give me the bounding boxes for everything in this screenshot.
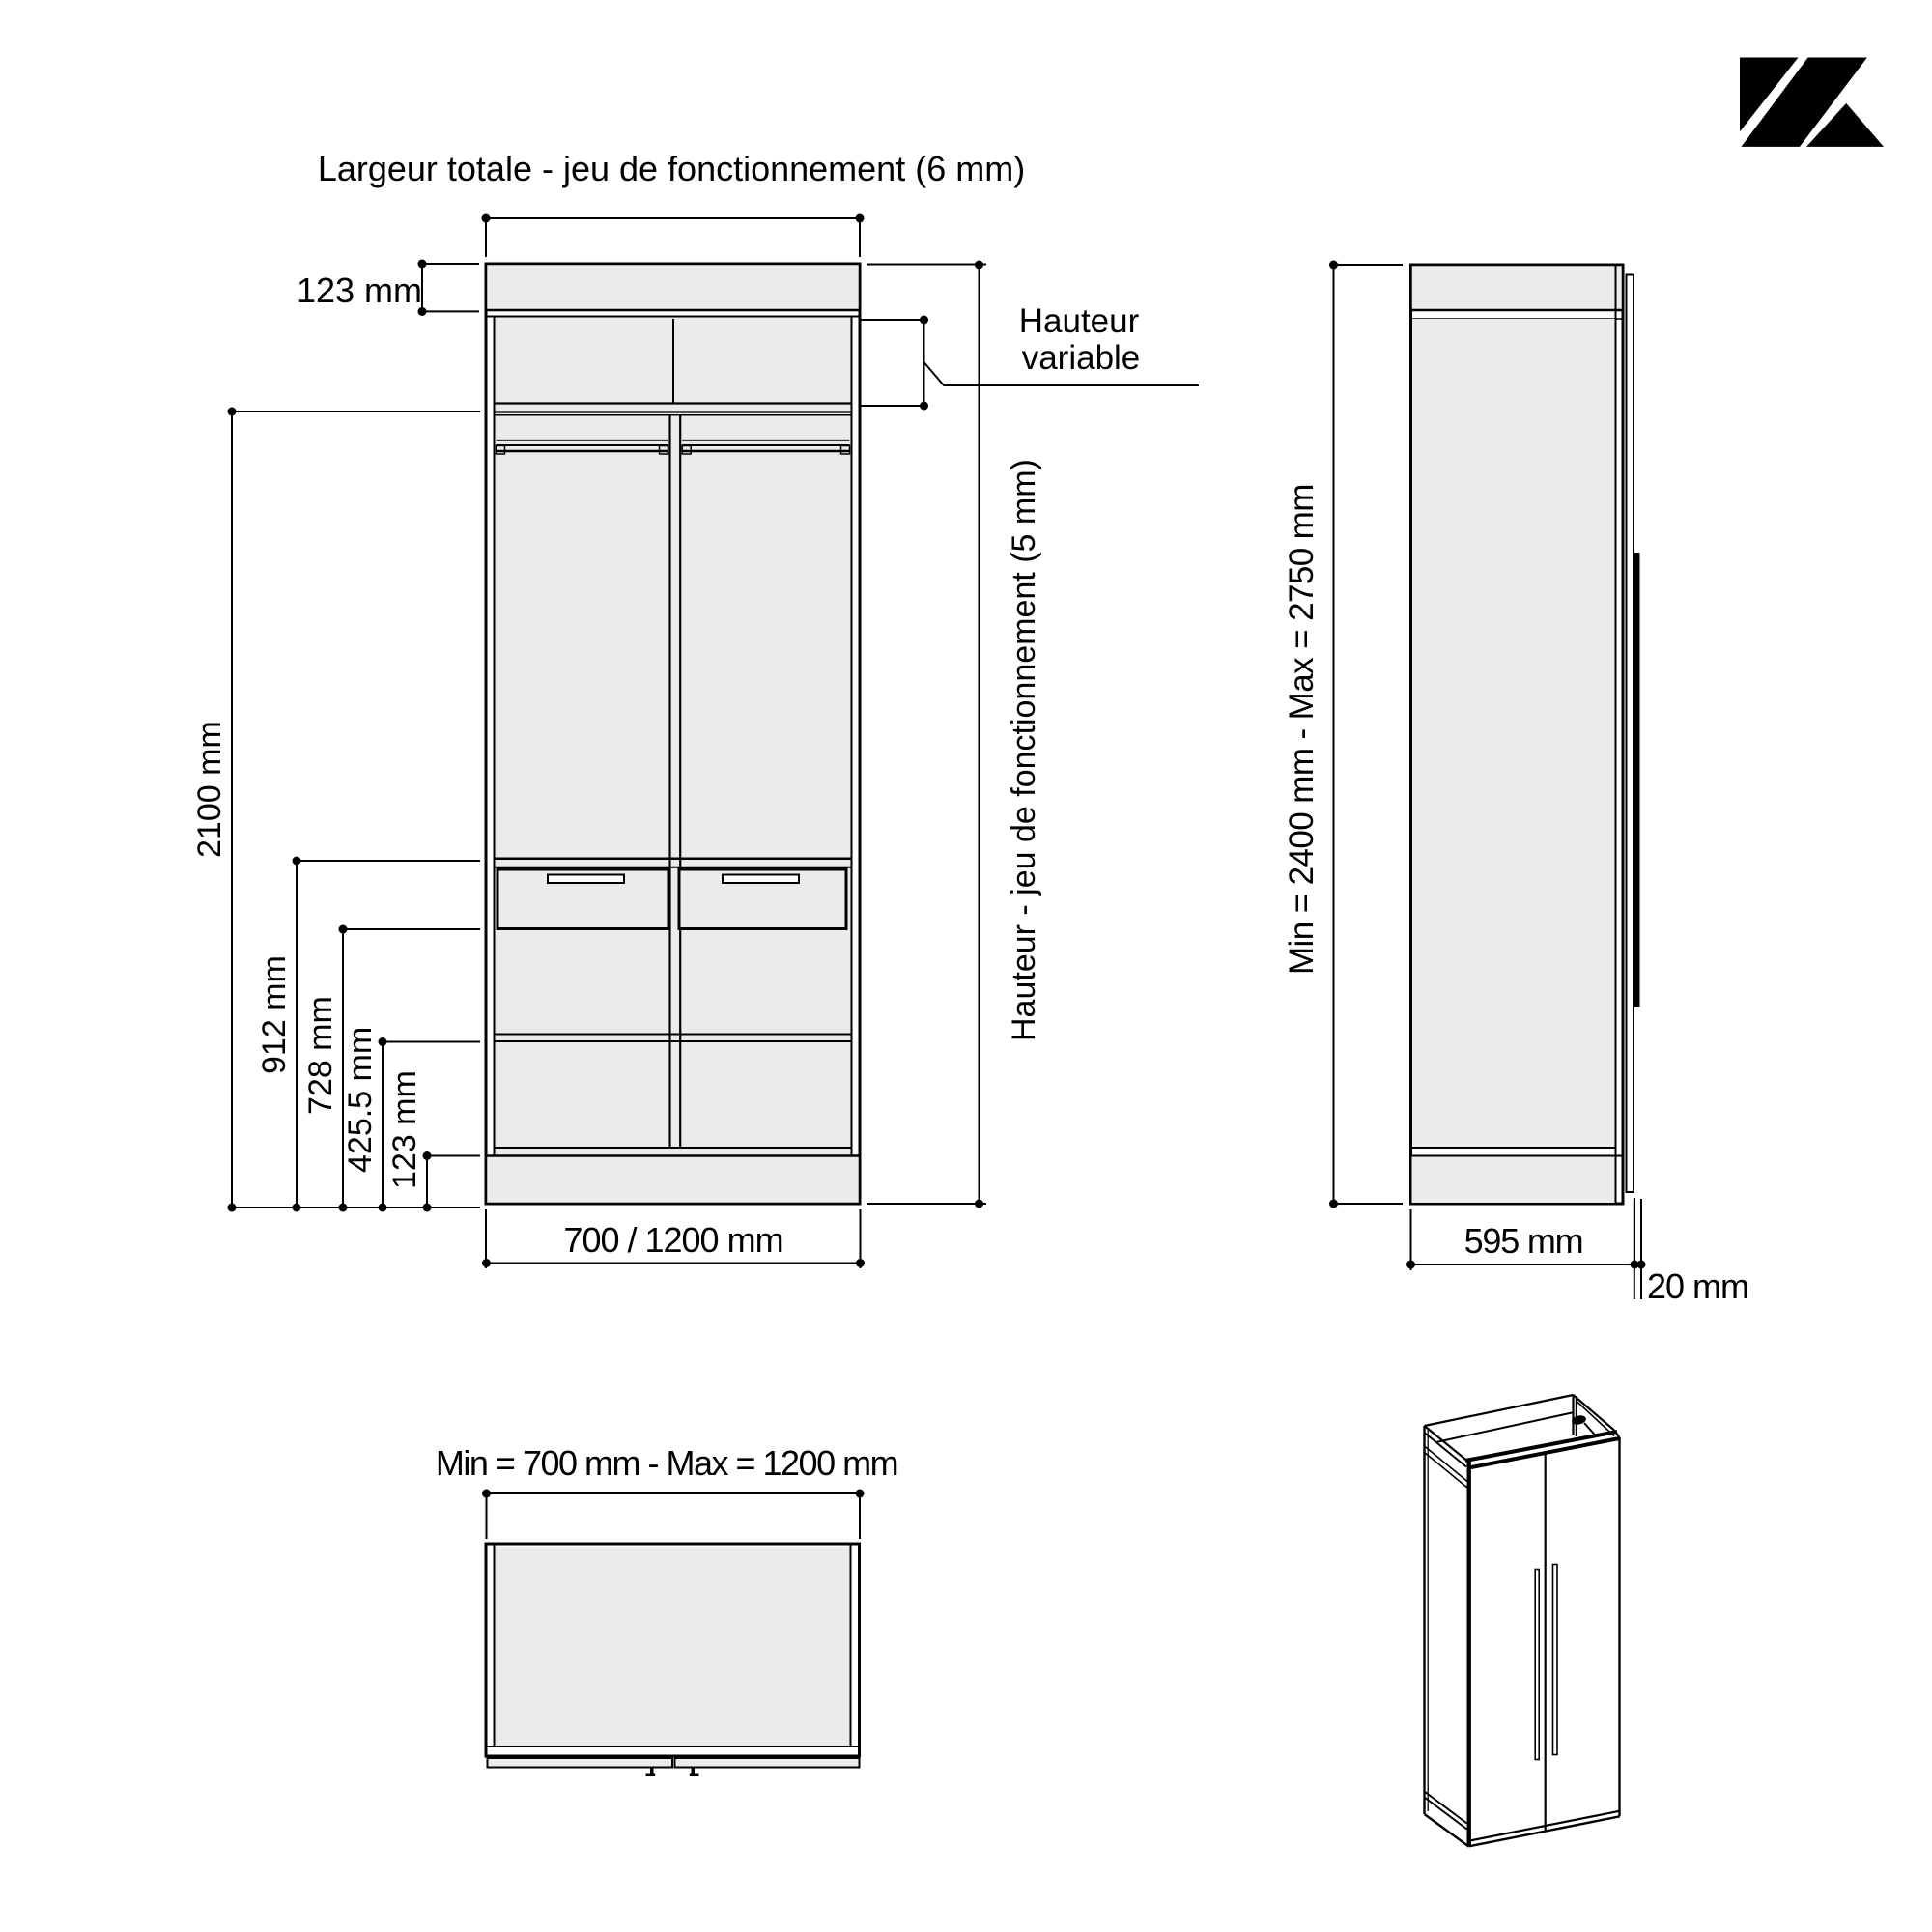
svg-text:20 mm: 20 mm	[1647, 1266, 1748, 1306]
svg-text:123 mm: 123 mm	[386, 1070, 423, 1189]
svg-text:Largeur totale - jeu de foncti: Largeur totale - jeu de fonctionnement (…	[318, 149, 1025, 188]
svg-text:Hauteur: Hauteur	[1019, 302, 1140, 340]
svg-text:Min = 700 mm - Max = 1200 mm: Min = 700 mm - Max = 1200 mm	[436, 1443, 897, 1483]
svg-text:Min = 2400 mm - Max = 2750 mm: Min = 2400 mm - Max = 2750 mm	[1283, 484, 1321, 975]
svg-text:595 mm: 595 mm	[1464, 1221, 1583, 1261]
svg-text:variable: variable	[1022, 339, 1141, 377]
svg-text:728 mm: 728 mm	[302, 996, 339, 1115]
svg-text:912 mm: 912 mm	[256, 955, 293, 1074]
svg-text:700 / 1200 mm: 700 / 1200 mm	[563, 1220, 782, 1260]
svg-text:Hauteur - jeu de fonctionnemen: Hauteur - jeu de fonctionnement (5 mm)	[1006, 459, 1042, 1041]
svg-text:2100 mm: 2100 mm	[191, 721, 228, 858]
svg-text:425.5 mm: 425.5 mm	[342, 1027, 379, 1173]
svg-text:123 mm: 123 mm	[297, 270, 422, 310]
